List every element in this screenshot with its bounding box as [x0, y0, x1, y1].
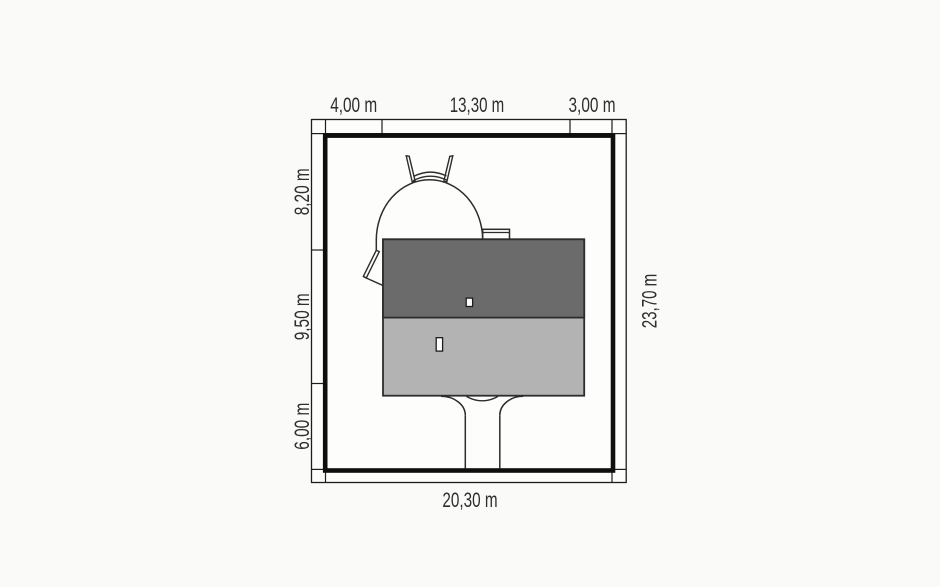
- svg-text:23,70 m: 23,70 m: [638, 274, 661, 329]
- svg-text:13,30 m: 13,30 m: [450, 94, 505, 117]
- svg-text:8,20 m: 8,20 m: [291, 168, 314, 215]
- svg-text:4,00 m: 4,00 m: [330, 94, 377, 117]
- svg-text:6,00 m: 6,00 m: [291, 403, 314, 450]
- svg-text:3,00 m: 3,00 m: [569, 94, 616, 117]
- svg-text:9,50 m: 9,50 m: [291, 293, 314, 340]
- svg-text:20,30 m: 20,30 m: [442, 489, 497, 512]
